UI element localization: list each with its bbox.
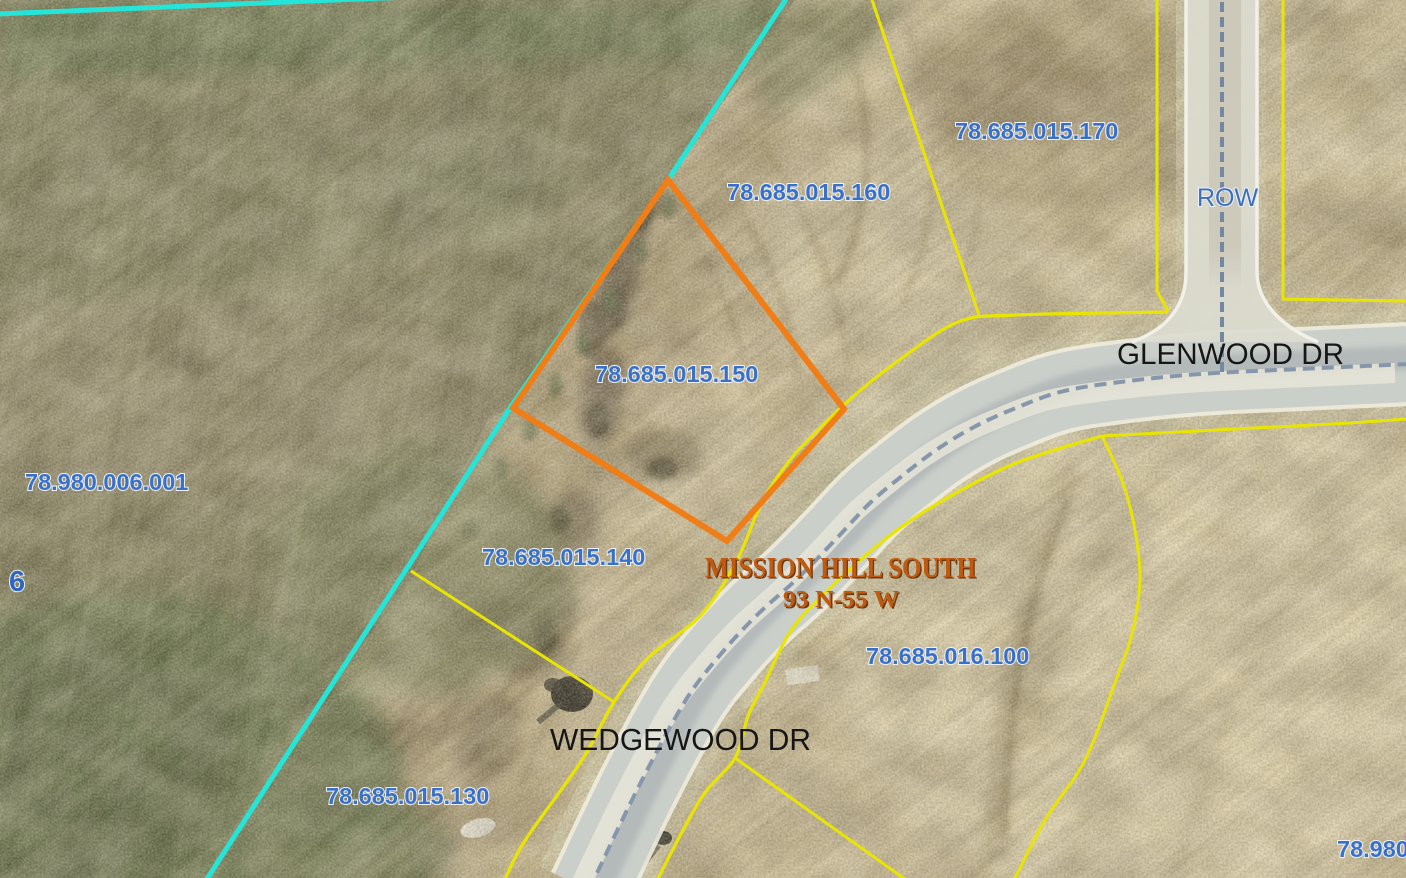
svg-text:78.685.016.100: 78.685.016.100 (866, 643, 1029, 669)
svg-text:ROW: ROW (1197, 184, 1259, 212)
svg-text:GLENWOOD DR: GLENWOOD DR (1117, 338, 1344, 371)
svg-text:93 N-55 W: 93 N-55 W (783, 587, 899, 613)
svg-text:78.980.006.001: 78.980.006.001 (25, 469, 188, 495)
svg-text:78.685.015.160: 78.685.015.160 (727, 179, 890, 205)
svg-text:78.685.015.150: 78.685.015.150 (595, 361, 758, 387)
svg-text:78.685.015.170: 78.685.015.170 (955, 118, 1118, 144)
svg-text:78.980: 78.980 (1337, 836, 1406, 862)
svg-text:78.685.015.130: 78.685.015.130 (326, 783, 489, 809)
svg-text:MISSION HILL SOUTH: MISSION HILL SOUTH (705, 553, 976, 584)
svg-text:WEDGEWOOD DR: WEDGEWOOD DR (550, 722, 811, 757)
svg-text:78.685.015.140: 78.685.015.140 (482, 544, 645, 570)
svg-text:6: 6 (9, 566, 25, 598)
